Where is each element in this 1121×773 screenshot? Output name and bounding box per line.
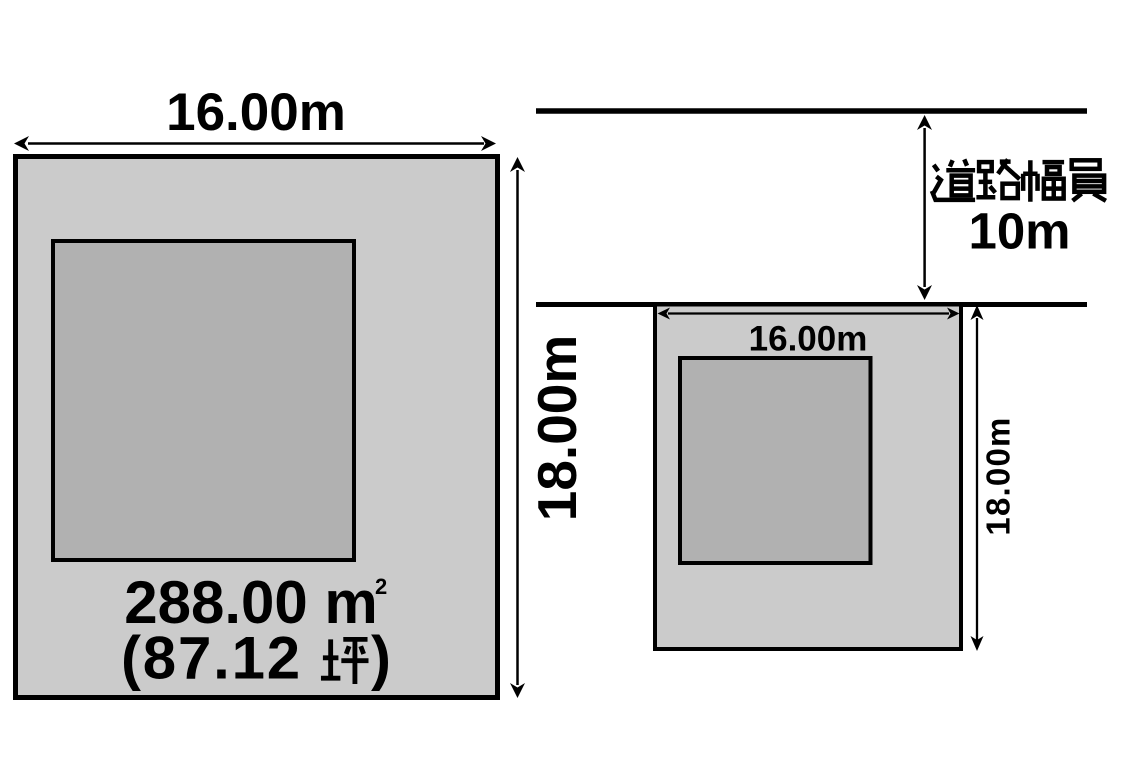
svg-text:18.00m: 18.00m bbox=[980, 416, 1017, 535]
svg-text:(87.12: (87.12 bbox=[121, 625, 302, 692]
svg-text:16.00m: 16.00m bbox=[749, 320, 868, 359]
svg-text:10m: 10m bbox=[968, 203, 1070, 260]
svg-text:18.00m: 18.00m bbox=[526, 335, 588, 522]
svg-text:2: 2 bbox=[375, 574, 387, 599]
svg-text:): ) bbox=[371, 625, 391, 692]
svg-text:16.00m: 16.00m bbox=[166, 83, 346, 142]
